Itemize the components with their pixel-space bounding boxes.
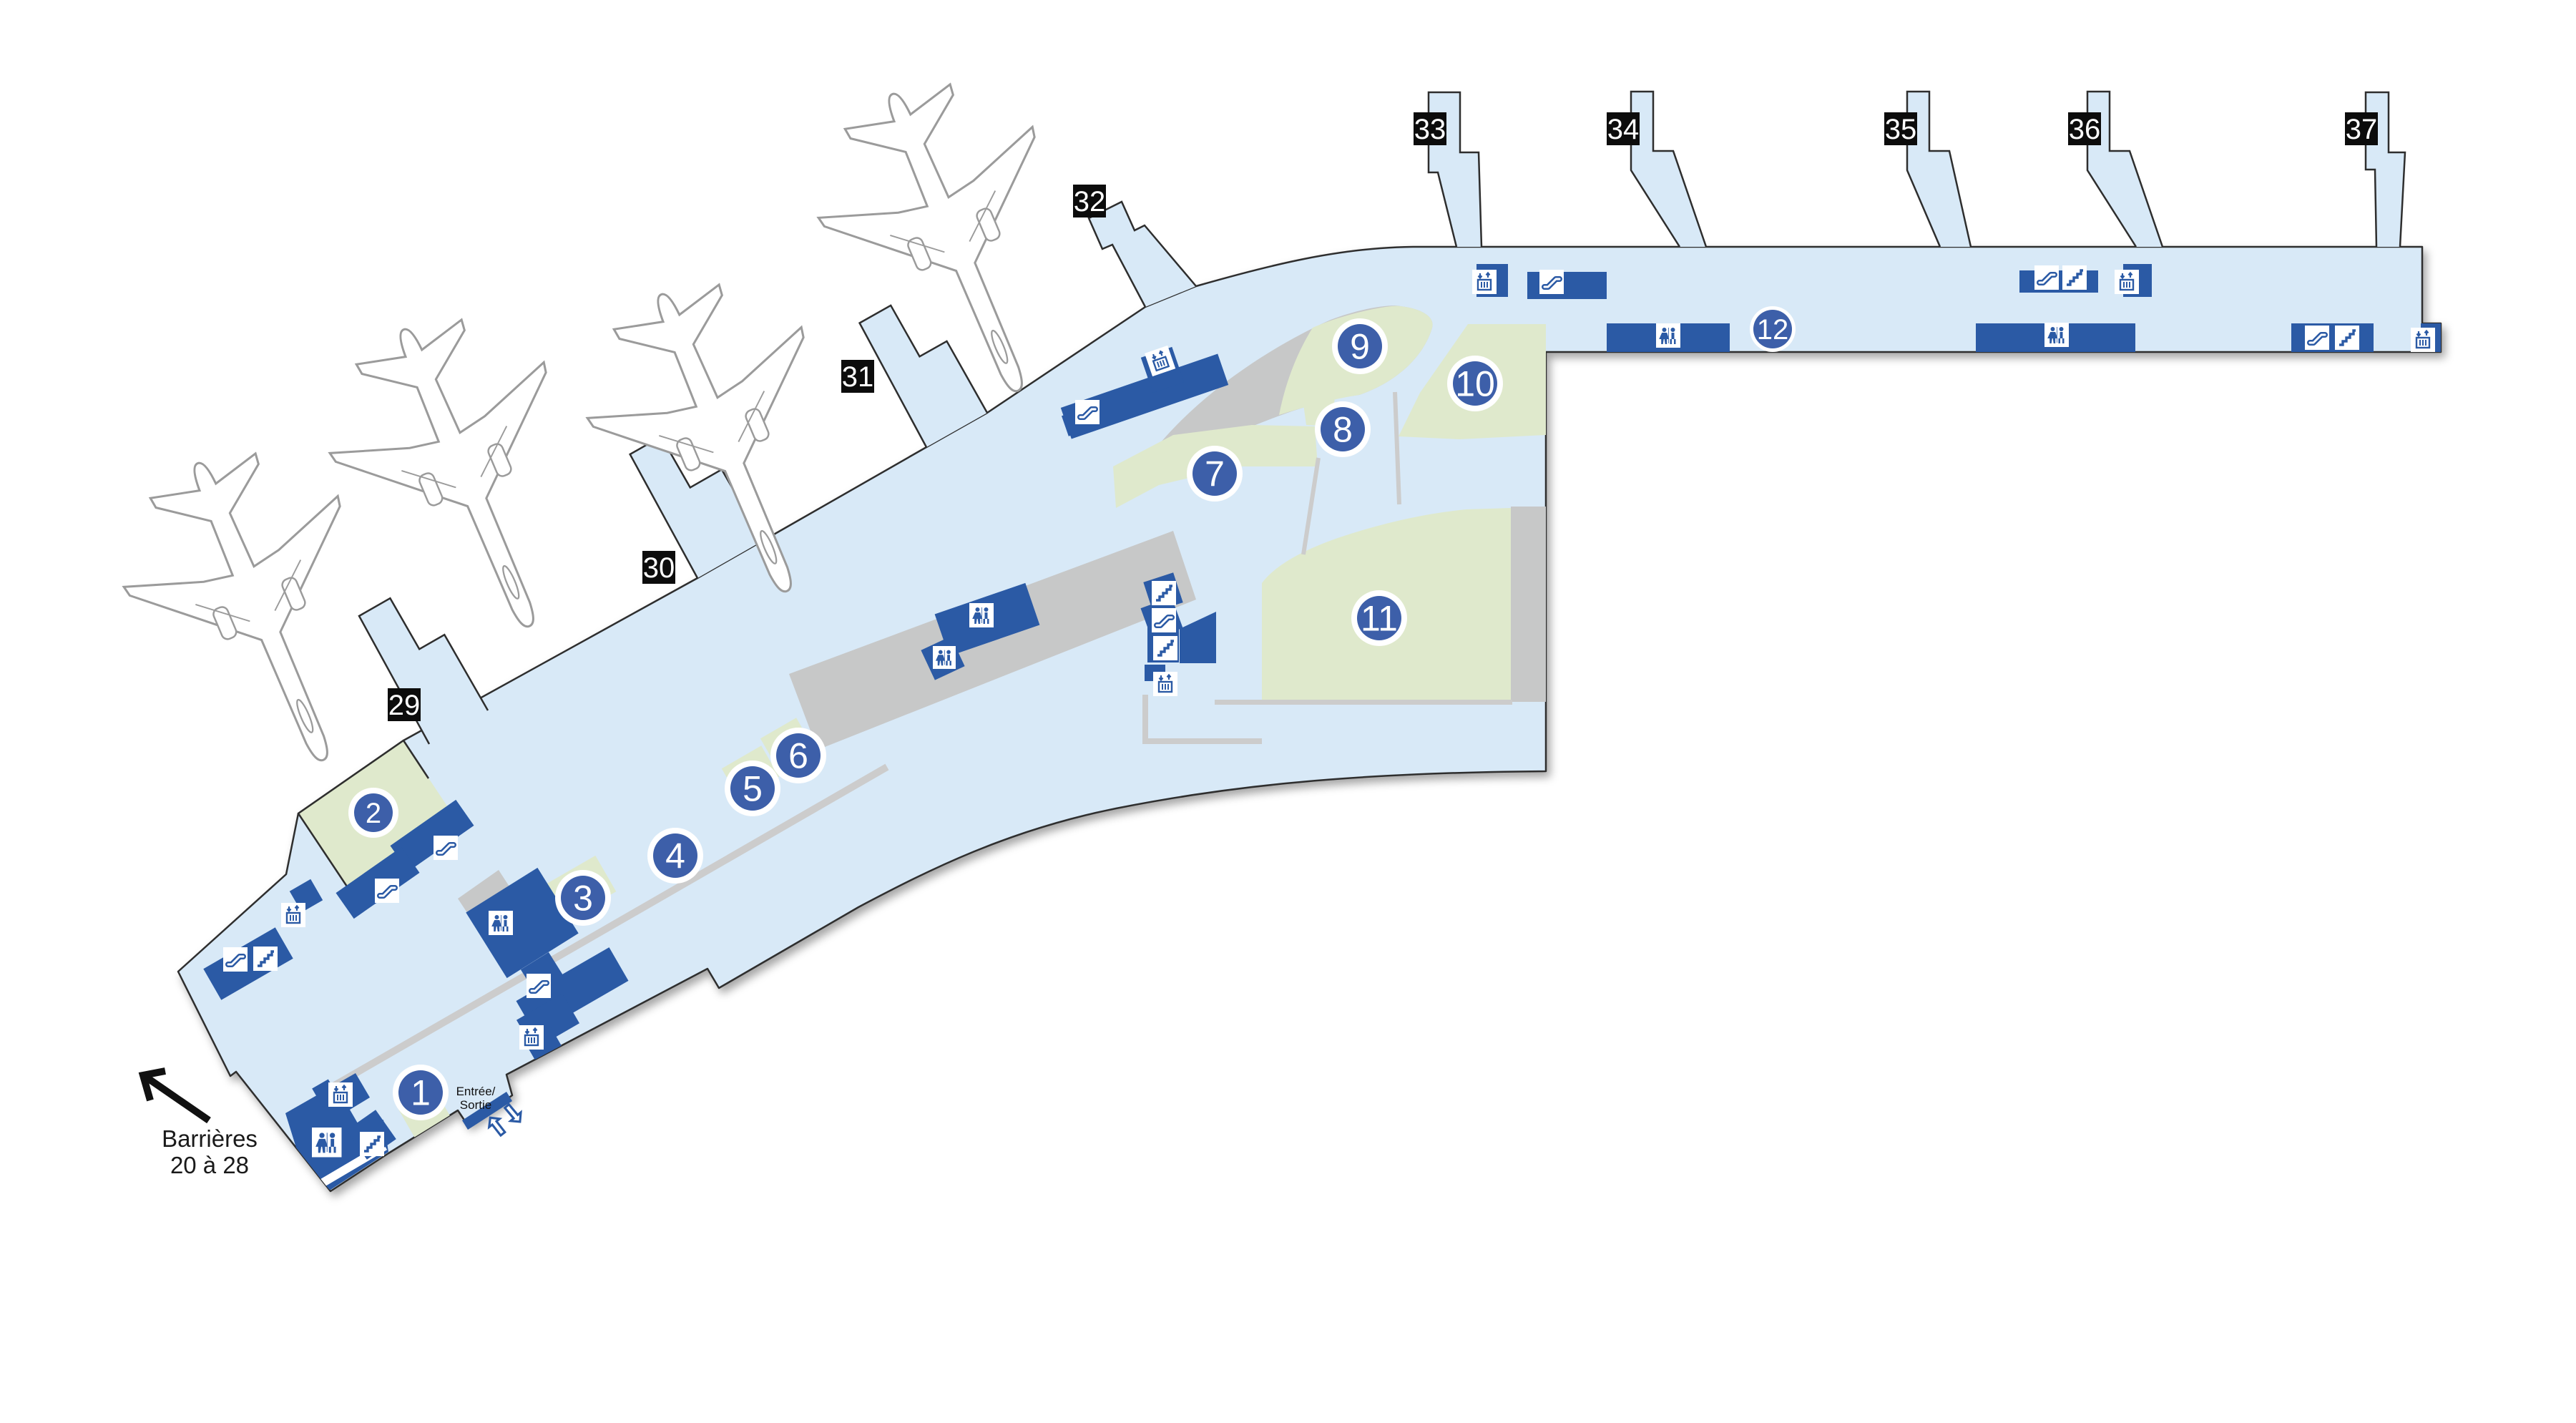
svg-text:2: 2 <box>366 798 381 829</box>
svg-text:31: 31 <box>842 361 874 393</box>
svg-text:Entrée/: Entrée/ <box>456 1085 496 1098</box>
svg-text:35: 35 <box>1885 114 1917 145</box>
svg-text:4: 4 <box>665 836 685 876</box>
svg-text:7: 7 <box>1205 454 1225 494</box>
svg-text:32: 32 <box>1074 186 1106 217</box>
svg-text:6: 6 <box>788 736 808 776</box>
svg-text:33: 33 <box>1414 114 1446 145</box>
svg-text:30: 30 <box>643 552 675 584</box>
svg-text:1: 1 <box>411 1073 431 1113</box>
svg-text:37: 37 <box>2346 114 2378 145</box>
svg-text:36: 36 <box>2069 114 2101 145</box>
svg-text:3: 3 <box>573 879 593 919</box>
svg-text:Barrières: Barrières <box>162 1125 258 1152</box>
svg-text:5: 5 <box>743 769 763 809</box>
svg-text:10: 10 <box>1455 364 1495 404</box>
svg-text:12: 12 <box>1757 314 1789 346</box>
svg-text:20 à 28: 20 à 28 <box>170 1152 249 1178</box>
svg-text:8: 8 <box>1333 410 1353 450</box>
svg-text:29: 29 <box>388 690 421 721</box>
svg-text:34: 34 <box>1607 114 1640 145</box>
svg-text:11: 11 <box>1361 599 1398 639</box>
svg-text:Sortie: Sortie <box>460 1098 491 1112</box>
svg-text:9: 9 <box>1350 327 1370 367</box>
